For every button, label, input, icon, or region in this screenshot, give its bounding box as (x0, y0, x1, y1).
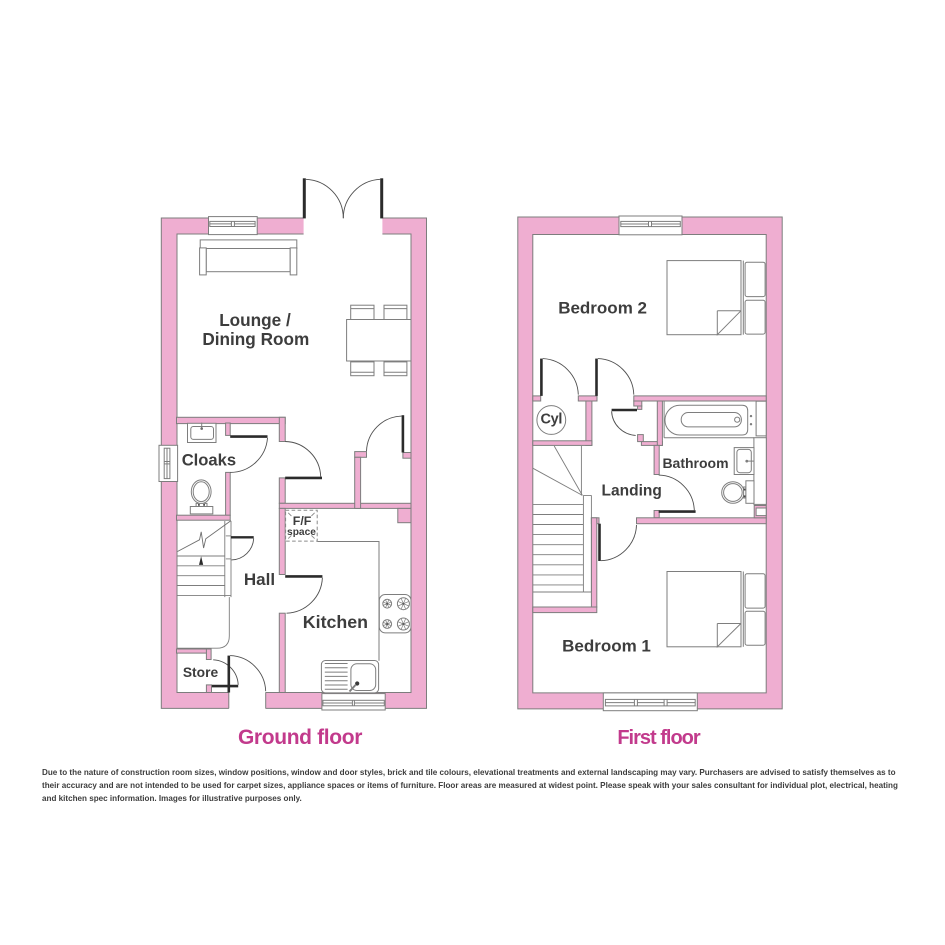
svg-text:Cloaks: Cloaks (182, 451, 236, 470)
svg-text:Due to the nature of construct: Due to the nature of construction room s… (42, 768, 896, 777)
svg-text:Bedroom 1: Bedroom 1 (562, 637, 651, 656)
svg-text:and kitchen spec information.: and kitchen spec information. Images for… (42, 794, 302, 803)
svg-text:Lounge /: Lounge / (219, 310, 291, 330)
svg-text:Store: Store (183, 665, 219, 680)
svg-text:Dining Room: Dining Room (202, 329, 309, 349)
svg-text:Ground floor: Ground floor (238, 726, 362, 749)
svg-text:space: space (287, 527, 316, 538)
svg-text:F/F: F/F (293, 514, 312, 528)
svg-text:Bedroom 2: Bedroom 2 (558, 299, 647, 318)
svg-text:First floor: First floor (617, 727, 701, 749)
svg-text:Cyl: Cyl (540, 411, 562, 427)
svg-text:their accuracy and are not int: their accuracy and are not intended to b… (42, 781, 898, 790)
svg-text:Hall: Hall (244, 570, 275, 589)
svg-text:Kitchen: Kitchen (303, 612, 368, 632)
svg-text:Bathroom: Bathroom (662, 455, 728, 471)
svg-text:Landing: Landing (602, 483, 662, 500)
